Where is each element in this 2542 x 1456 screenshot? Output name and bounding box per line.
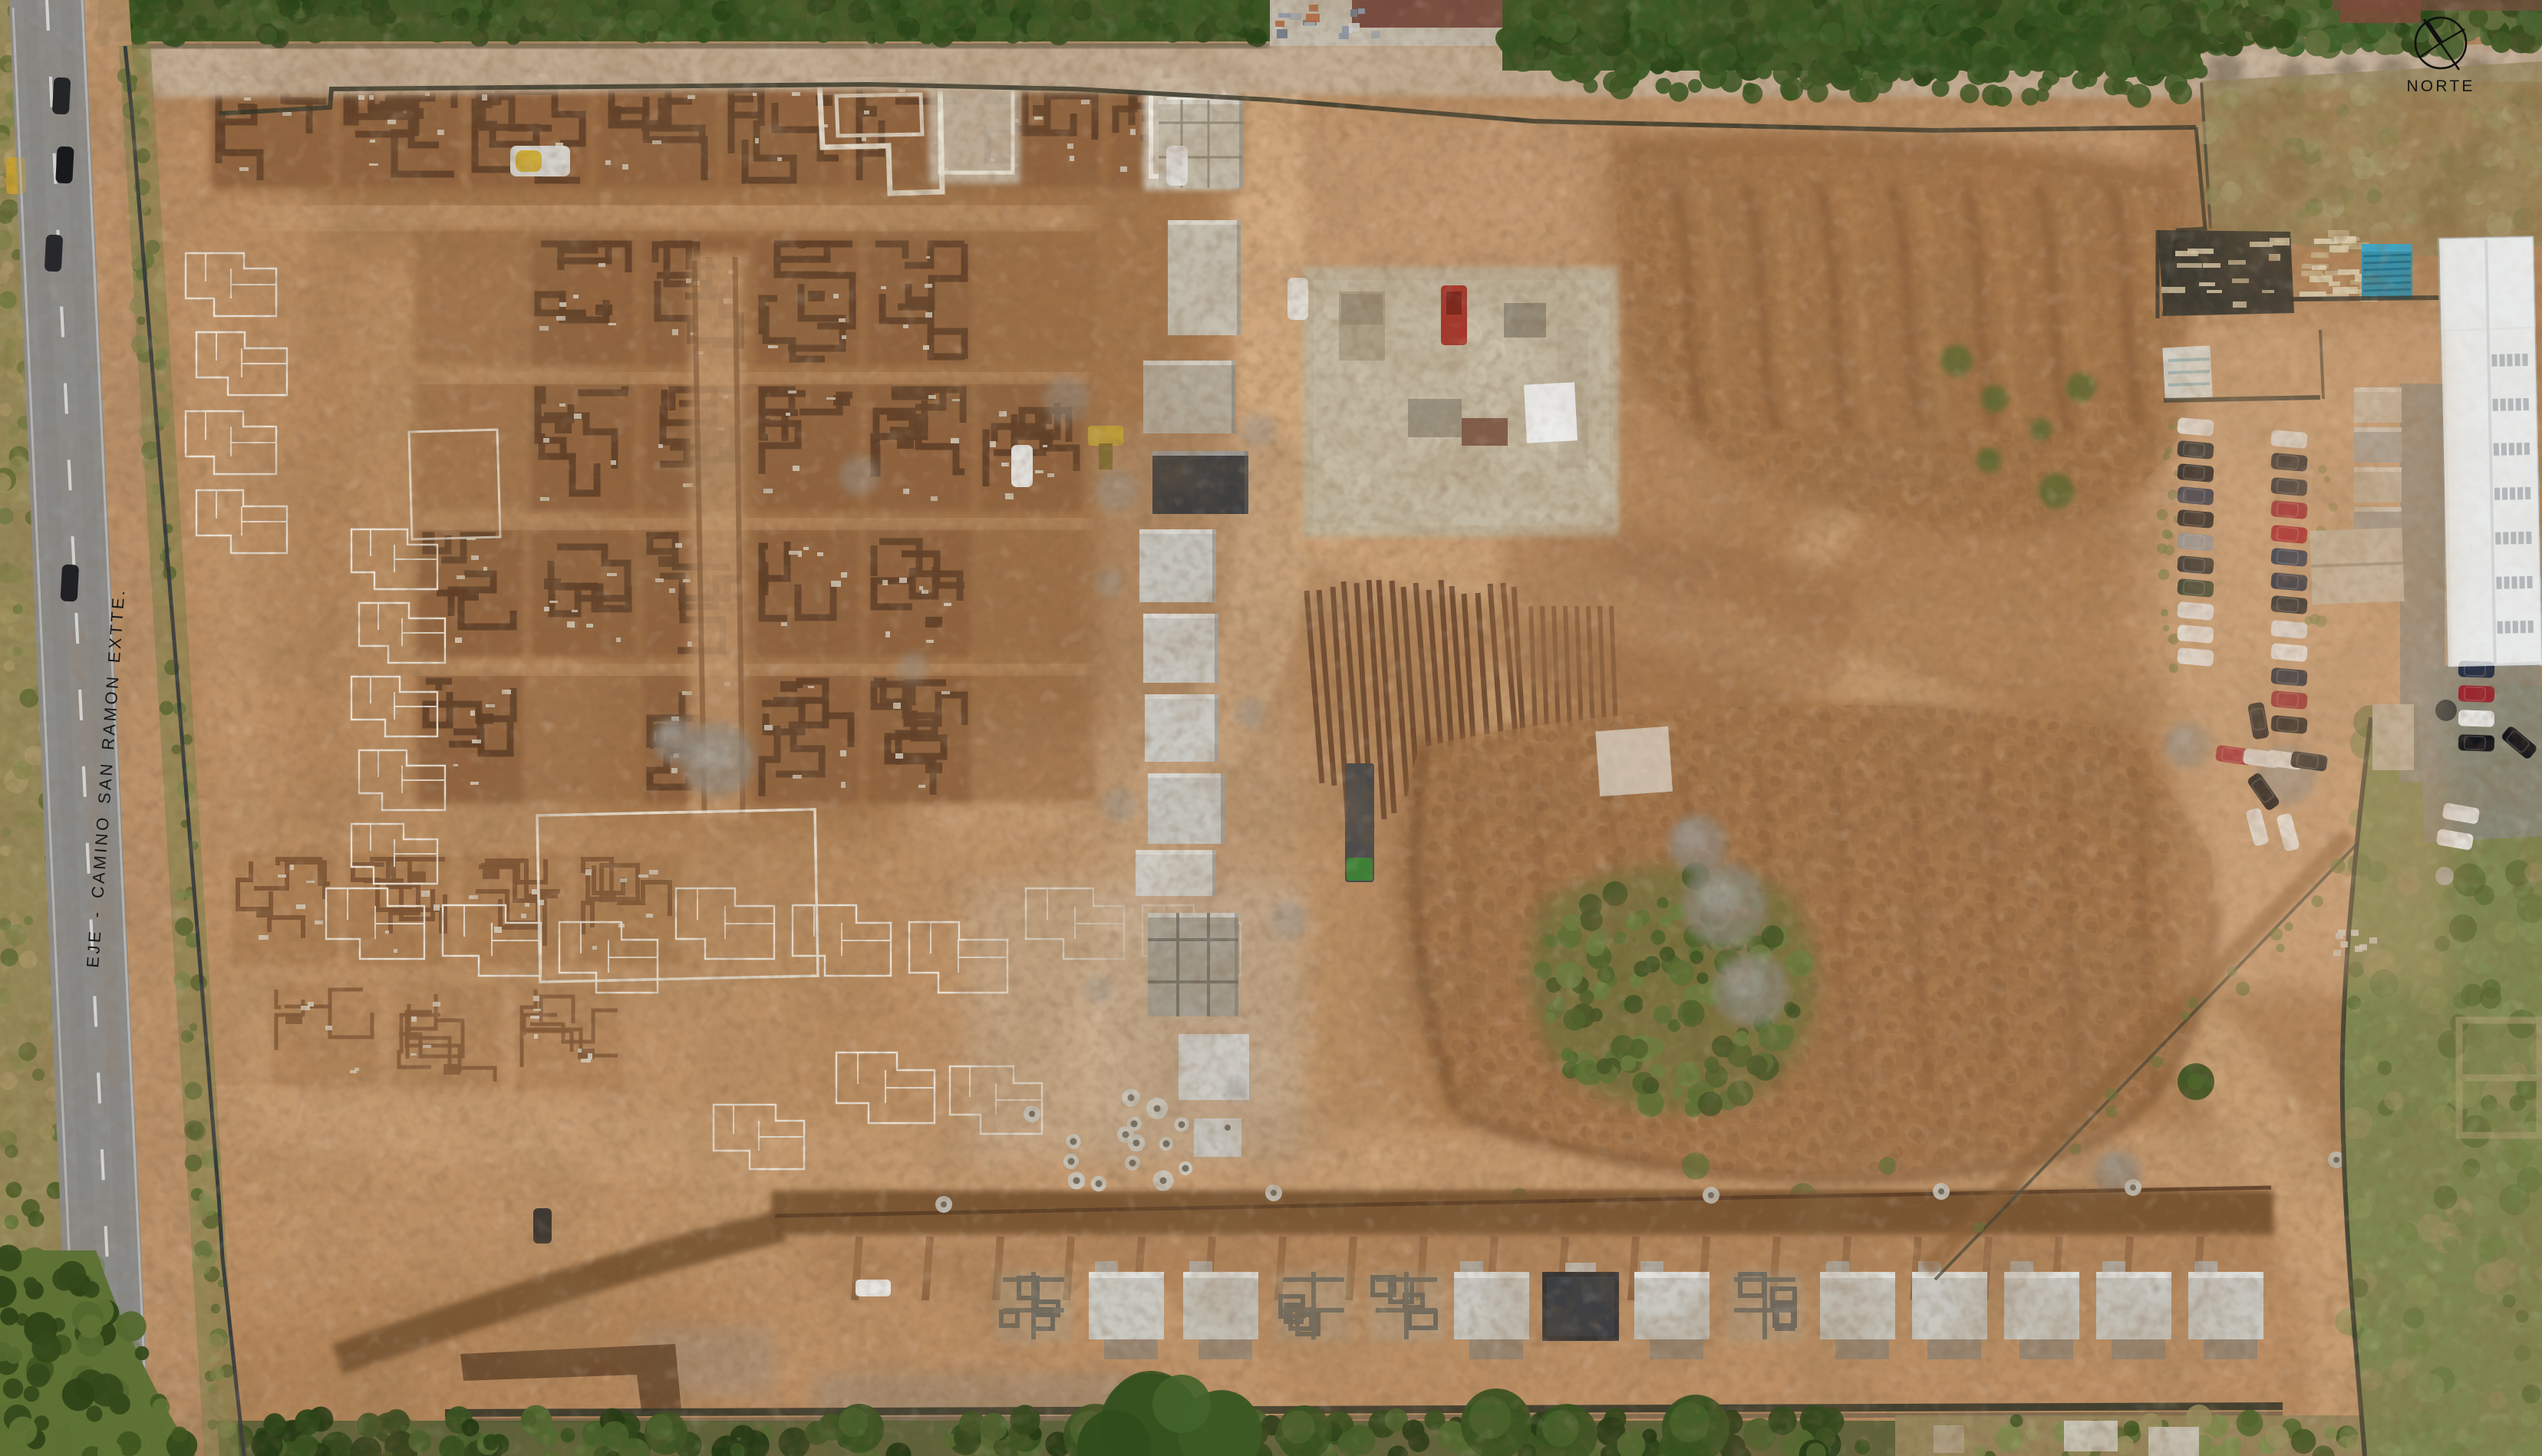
- svg-text:NORTE: NORTE: [2406, 77, 2474, 95]
